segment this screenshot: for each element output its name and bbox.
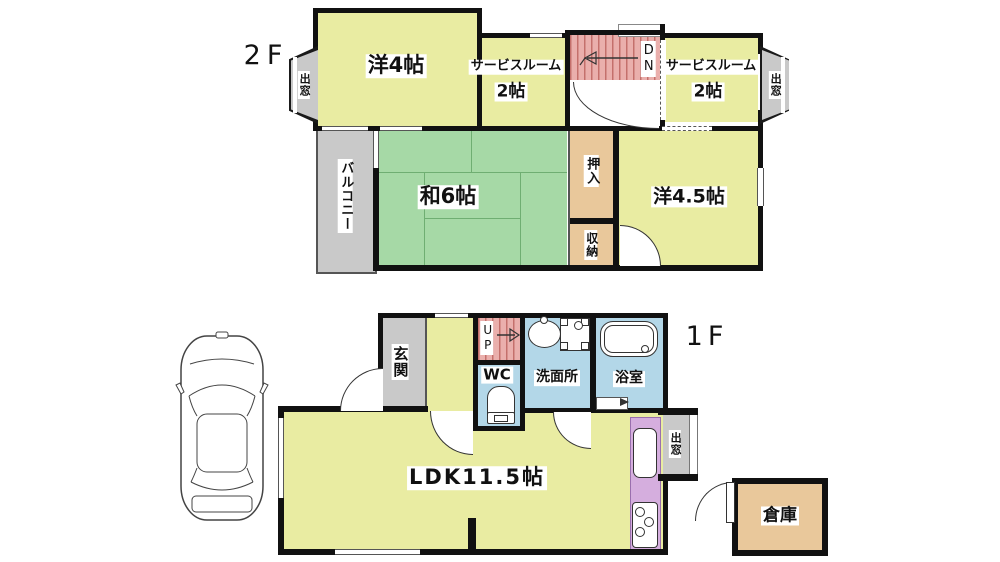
window: [530, 33, 562, 38]
door-leaf: [726, 482, 735, 523]
wall: [278, 406, 284, 418]
window-dashed: [662, 126, 712, 131]
room-label-service-right-size: 2帖: [692, 82, 725, 101]
floor2-label: 2F: [242, 41, 291, 71]
window: [380, 126, 422, 131]
burner: [635, 527, 645, 537]
wall: [313, 8, 482, 13]
tatami-line: [379, 172, 567, 173]
hall-1f: [427, 318, 473, 414]
balcony-label: バルコニー: [338, 159, 353, 233]
room-label-japanese6: 和6帖: [418, 185, 479, 209]
bay-window-wall: [658, 474, 698, 481]
window: [335, 549, 420, 555]
toilet-notch: [494, 415, 508, 422]
room-service-right-2f: [665, 38, 758, 122]
stairs-up-arrow: [496, 326, 522, 344]
wall: [660, 33, 763, 38]
tatami-line: [471, 131, 472, 172]
bay-window-label: 出窓: [669, 430, 681, 458]
wall: [278, 549, 335, 555]
ldk-label: LDK11.5帖: [407, 466, 547, 490]
room-label-western4: 洋4帖: [366, 54, 427, 78]
wall: [570, 218, 619, 224]
car-illustration: [176, 330, 268, 526]
door-arc-entrance: [340, 368, 383, 411]
door-triangle: [620, 398, 629, 406]
wall: [565, 30, 665, 35]
wall: [565, 30, 570, 131]
wall: [468, 518, 476, 549]
wall: [473, 318, 478, 431]
stairs-down-label: DN: [641, 41, 656, 77]
sliding-door-line: [568, 131, 570, 265]
bay-window-wall: [658, 408, 698, 415]
wall: [278, 498, 284, 555]
bay-window-label: 出窓: [298, 71, 310, 99]
wall: [663, 313, 668, 416]
window: [757, 168, 764, 206]
window: [373, 131, 379, 168]
wall: [420, 549, 668, 555]
wall: [378, 313, 383, 369]
wall: [663, 475, 668, 555]
washer-corner: [560, 342, 568, 350]
stairs-down-arrow: [578, 48, 644, 68]
bathtub-drain: [641, 345, 649, 353]
wall: [758, 206, 763, 271]
room-label-service-left: サービスルーム: [469, 60, 564, 75]
wall: [520, 408, 668, 413]
burner: [644, 517, 654, 527]
washroom-label: 洗面所: [534, 370, 580, 386]
closet-label: 押入: [584, 155, 599, 187]
washer-corner: [581, 342, 589, 350]
bay-window-glass: [689, 415, 698, 474]
bay-window-glass: [293, 57, 297, 113]
window: [435, 313, 468, 318]
wall: [473, 426, 525, 431]
floor1-label: 1F: [684, 322, 731, 352]
tatami-line: [424, 218, 521, 219]
window: [278, 418, 284, 498]
wall: [613, 126, 619, 271]
burner: [635, 507, 645, 517]
wall: [376, 265, 763, 271]
warehouse-label: 倉庫: [761, 506, 799, 525]
window: [322, 126, 368, 131]
washbasin: [528, 320, 561, 348]
washer-drain: [574, 321, 583, 330]
entrance-label: 玄関: [392, 344, 409, 380]
sliding-door-dashed: [660, 40, 666, 120]
room-label-western45: 洋4.5帖: [651, 186, 727, 207]
bathroom-label: 浴室: [613, 371, 645, 387]
room-label-service-left-size: 2帖: [495, 82, 528, 101]
storage-label: 収納: [584, 230, 597, 260]
wall: [373, 168, 379, 271]
toilet-label: WC: [481, 367, 513, 384]
washer-corner: [560, 318, 568, 326]
wall: [758, 126, 763, 168]
faucet: [540, 316, 548, 324]
floor-plan: 2F 洋4帖 サービスルーム 2帖 DN サービスルーム 2帖 和6帖 押入 収…: [0, 0, 1000, 562]
bay-window-label: 出窓: [769, 71, 781, 99]
stairs-up-label: UP: [480, 321, 493, 355]
kitchen-sink: [633, 428, 657, 478]
wall: [478, 360, 520, 365]
room-label-service-right: サービスルーム: [664, 60, 759, 75]
